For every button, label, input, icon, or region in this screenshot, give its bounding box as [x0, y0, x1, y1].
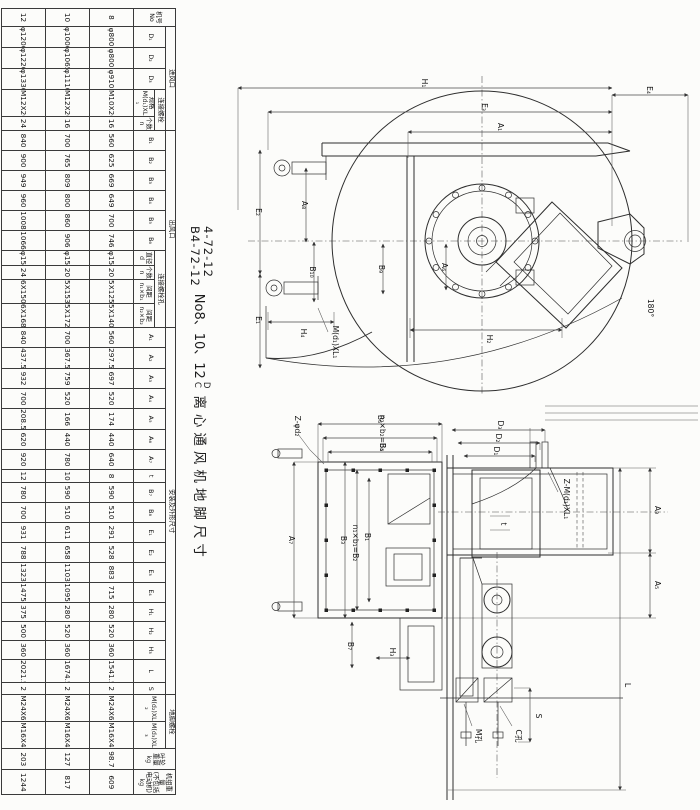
dim-label-t: t [499, 523, 508, 526]
dim-label-D2: D₂ [494, 434, 503, 443]
table-cell: 20 [89, 266, 133, 280]
table-cell: M16X400 [89, 722, 133, 749]
table-header-cell: 出风口 [166, 131, 176, 328]
table-header-cell: B₄ [133, 191, 165, 211]
table-header-cell: 规格 M(d₁)XL₁ [133, 90, 154, 117]
dimension-table-wrap: 机号 No进风口出风口安装及外形尺寸地脚螺栓叶轮 重量 kg机组重量 (不包括 … [8, 8, 176, 794]
table-cell: 949 [1, 171, 45, 191]
dim-label-A6: A₆ [440, 263, 449, 271]
table-cell: 1066 [1, 231, 45, 251]
table-cell: φ15 [1, 251, 45, 266]
table-cell: 1103 [45, 563, 89, 583]
table-header-cell: 连接螺栓 [155, 90, 166, 131]
table-cell: 788 [1, 543, 45, 563]
dim-label-H4: H₄ [299, 329, 308, 338]
table-cell: 658 [45, 543, 89, 563]
table-header-cell: B₁ [133, 131, 165, 151]
table-cell: 700 [1, 503, 45, 523]
table-header-cell: H₂ [133, 622, 165, 641]
table-cell: 360 [1, 641, 45, 660]
page: 机号 No进风口出风口安装及外形尺寸地脚螺栓叶轮 重量 kg机组重量 (不包括 … [0, 0, 700, 810]
table-cell: 700 [45, 131, 89, 151]
dim-label-H1: H₁ [420, 79, 429, 88]
table-cell: 500 [1, 622, 45, 641]
dim-label-A8: A₈ [300, 201, 309, 209]
table-header-cell: S [133, 683, 165, 695]
table-cell: 20 [45, 266, 89, 280]
table-header-cell: 间距 n₂×b₂ [133, 304, 154, 328]
table-cell: 860 [45, 211, 89, 231]
foundation-callout-left: M孔 [474, 729, 483, 744]
table-header-cell: A₂ [133, 348, 165, 369]
table-header-cell: H₃ [133, 641, 165, 660]
dim-label-D3: D₃ [496, 421, 505, 430]
table-header-cell: H₁ [133, 603, 165, 622]
drive-type-c: C [192, 382, 201, 389]
table-cell: 640 [89, 450, 133, 470]
table-cell: 10 [45, 470, 89, 483]
dim-label-A5: A₅ [653, 581, 662, 589]
fan-front-view-drawing: H₁ E₄ E₃ A₁ E₂ E₁ A₈ B₁₀ B₉ H₄ M(d₁)XL₁ … [230, 50, 700, 400]
table-cell: 24 [1, 266, 45, 280]
table-cell: 16 [45, 117, 89, 131]
table-cell: 166 [45, 409, 89, 430]
fan-side-view-drawing: B₆ n₂×b₂=B₅ B₄ Z-φd₂ A₇ B₃ n₁×b₁=B₂ B₁ B… [268, 400, 700, 810]
dim-label-D1: D₁ [492, 447, 501, 456]
table-cell: M16X400 [45, 722, 89, 749]
table-cell: 906 [45, 231, 89, 251]
table-header-cell: B₆ [133, 231, 165, 251]
table-cell: 932 [1, 369, 45, 389]
table-cell: 5X153 [45, 280, 89, 304]
inlet-stud-detail-bottom [266, 276, 318, 300]
table-cell: 669 [89, 171, 133, 191]
table-cell: 2 [89, 683, 133, 695]
table-cell: 700 [1, 389, 45, 409]
table-cell: 1475 [1, 583, 45, 603]
table-cell: 8 [89, 9, 133, 27]
table-cell: 440 [89, 430, 133, 450]
bolt-spec-label: M(d₁)XL₁ [331, 326, 340, 359]
table-header-cell: B₃ [133, 171, 165, 191]
table-row: 12φ1200φ1220φ1330M12X2024840900949960100… [1, 9, 45, 795]
table-cell: 510 [89, 503, 133, 523]
table-cell: φ1000 [45, 27, 89, 48]
table-cell: 528 [89, 543, 133, 563]
table-cell: 900 [1, 151, 45, 171]
table-cell: 590 [89, 483, 133, 503]
table-cell: M24X630 [89, 695, 133, 722]
dim-label-H3: H₃ [388, 648, 397, 657]
table-cell: 360 [45, 641, 89, 660]
dim-label-B4: B₄ [378, 443, 387, 451]
table-cell: 1541.5 [89, 660, 133, 683]
table-header-cell: 个数 n [133, 117, 154, 131]
dim-label-B10: B₁₀ [308, 266, 317, 277]
table-cell: 1674.5 [45, 660, 89, 683]
title-block: 4-72-12 B4-72-12 No8、10、12 D C 离心通风机地脚尺寸 [183, 226, 219, 592]
table-cell: M24X630 [1, 695, 45, 722]
table-header-cell: 安装及外形尺寸 [166, 328, 176, 695]
table-cell: 2 [1, 683, 45, 695]
table-cell: 765 [45, 151, 89, 171]
table-cell: 360 [89, 641, 133, 660]
table-cell: 24 [1, 117, 45, 131]
inlet-stud-detail-top [274, 156, 326, 180]
dim-label-H2: H₂ [485, 335, 494, 344]
table-cell: 280 [45, 603, 89, 622]
table-header-cell: 个数 n [133, 266, 154, 280]
table-cell: 780 [45, 450, 89, 470]
table-cell: 5X140 [89, 304, 133, 328]
table-cell: φ910 [89, 69, 133, 90]
table-header-cell: 地脚螺栓 [166, 695, 176, 749]
table-header-cell: B₂ [133, 151, 165, 171]
table-cell: 817 [45, 770, 89, 795]
fan-model-numbers: 4-72-12 B4-72-12 [188, 226, 214, 287]
table-header-cell: E₂ [133, 543, 165, 563]
dim-label-A3: A₃ [653, 506, 662, 514]
table-cell: 609 [89, 770, 133, 795]
table-cell: 5X125 [89, 280, 133, 304]
table-cell: φ800 [89, 48, 133, 69]
table-cell: 625 [89, 151, 133, 171]
table-cell: 1095 [45, 583, 89, 603]
table-header-cell: L [133, 660, 165, 683]
table-cell: 1323 [1, 563, 45, 583]
table-cell: 746 [89, 231, 133, 251]
table-cell: 1244 [1, 770, 45, 795]
table-cell: φ1110 [45, 69, 89, 90]
table-cell: 375 [1, 603, 45, 622]
table-cell: 8 [89, 470, 133, 483]
table-header-cell: E₄ [133, 583, 165, 603]
table-cell: 620 [1, 430, 45, 450]
table-header-cell: D₂ [133, 48, 165, 69]
foundation-callout-right: C孔 [514, 730, 523, 743]
table-cell: 280 [89, 603, 133, 622]
table-header-cell: 直径 d [133, 251, 154, 266]
table-header-cell: A₆ [133, 430, 165, 450]
table-header-cell: 叶轮 重量 kg [133, 749, 175, 770]
dim-label-B9: B₉ [377, 265, 386, 273]
table-header-cell: D₃ [133, 69, 165, 90]
table-cell: φ1200 [1, 27, 45, 48]
table-cell: 560 [89, 131, 133, 151]
table-cell: 700 [89, 211, 133, 231]
table-cell: M10X20 [89, 90, 133, 117]
dim-label-A1: A₁ [496, 123, 505, 131]
table-cell: 611 [45, 523, 89, 543]
table-header-cell: 间距 n₁×b₁ [133, 280, 154, 304]
table-cell: 440 [45, 430, 89, 450]
table-cell: 12 [1, 470, 45, 483]
table-header-cell: B₇ [133, 483, 165, 503]
inlet-bolt-callout: Z-M(d₁)XL₁ [562, 479, 571, 520]
bolt-hole-callout: Z-φd₂ [293, 416, 302, 437]
table-cell: 5X172 [45, 304, 89, 328]
table-cell: 6X168 [1, 304, 45, 328]
table-cell: 931 [1, 523, 45, 543]
table-cell: 697 [89, 369, 133, 389]
outlet-angle-label: 180° [646, 299, 655, 317]
table-cell: 809 [45, 171, 89, 191]
table-header-cell: 机组重量 (不包括 电动机)kg [133, 770, 175, 795]
dim-label-E2: E₂ [254, 208, 263, 216]
table-header-cell: t [133, 470, 165, 483]
table-cell: 590 [45, 483, 89, 503]
dim-label-B7: B₇ [346, 642, 355, 650]
table-cell: 510 [45, 503, 89, 523]
table-cell: 6X150 [1, 280, 45, 304]
dim-label-L: L [623, 683, 632, 688]
drive-type-d: D [201, 382, 210, 389]
table-cell: 2 [45, 683, 89, 695]
table-cell: 203 [1, 749, 45, 770]
table-cell: 297.5 [89, 348, 133, 369]
table-cell: 840 [1, 131, 45, 151]
table-cell: 520 [45, 622, 89, 641]
fan-sizes: No8、10、12 [192, 294, 211, 379]
table-cell: 98.7 [89, 749, 133, 770]
table-cell: 649 [89, 191, 133, 211]
model-top: 4-72-12 [201, 226, 214, 287]
dim-label-A7: A₇ [287, 536, 296, 544]
table-cell: φ1065 [45, 48, 89, 69]
table-cell: 520 [89, 389, 133, 409]
dim-label-E4: E₄ [645, 86, 654, 94]
table-cell: 208.5 [1, 409, 45, 430]
table-header-row: D₁D₂D₃连接螺栓B₁B₂B₃B₄B₅B₆连接螺栓孔A₁A₂A₃A₄A₅A₆A… [155, 9, 166, 795]
table-cell: 367.5 [45, 348, 89, 369]
table-cell: φ15 [89, 251, 133, 266]
table-header-cell: M(d₃)XL₃ [133, 722, 165, 749]
table-cell: 715 [89, 583, 133, 603]
table-row: 10φ1000φ1065φ1110M12X2016700765809800860… [45, 9, 89, 795]
table-cell: 700 [45, 328, 89, 348]
table-cell: 780 [1, 483, 45, 503]
table-cell: M24X630 [45, 695, 89, 722]
drawing-title: 离心通风机地脚尺寸 [191, 395, 211, 562]
table-cell: 2021.5 [1, 660, 45, 683]
dim-label-S: S [534, 714, 543, 719]
model-bottom: B4-72-12 [188, 226, 201, 287]
table-header-cell: 进风口 [166, 27, 176, 131]
table-cell: 883 [89, 563, 133, 583]
table-cell: 759 [45, 369, 89, 389]
table-cell: 16 [89, 117, 133, 131]
table-header-cell: 机号 No [133, 9, 175, 27]
table-cell: φ1330 [1, 69, 45, 90]
dim-label-B1: B₁ [363, 533, 372, 541]
table-header-cell: D₁ [133, 27, 165, 48]
table-header-cell: E₁ [133, 523, 165, 543]
table-cell: 560 [89, 328, 133, 348]
table-cell: 174 [89, 409, 133, 430]
table-cell: φ15 [45, 251, 89, 266]
table-header-cell: B₈ [133, 503, 165, 523]
table-cell: M16X400 [1, 722, 45, 749]
table-header-cell: A₄ [133, 389, 165, 409]
table-cell: 291 [89, 523, 133, 543]
table-cell: 920 [1, 450, 45, 470]
table-cell: 840 [1, 328, 45, 348]
table-header-cell: A₅ [133, 409, 165, 430]
dim-label-E3: E₃ [480, 103, 489, 111]
table-cell: 800 [45, 191, 89, 211]
table-cell: φ800 [89, 27, 133, 48]
table-cell: 10 [45, 9, 89, 27]
dim-label-B2: n₁×b₁=B₂ [351, 525, 360, 562]
dim-label-E1: E₁ [254, 316, 263, 324]
dim-label-B3: B₃ [339, 536, 348, 544]
table-cell: M12X20 [45, 90, 89, 117]
table-cell: 127 [45, 749, 89, 770]
table-header-cell: E₃ [133, 563, 165, 583]
table-header-cell: A₇ [133, 450, 165, 470]
table-cell: 1008 [1, 211, 45, 231]
table-header-cell: A₃ [133, 369, 165, 389]
table-cell: 960 [1, 191, 45, 211]
dimension-table: 机号 No进风口出风口安装及外形尺寸地脚螺栓叶轮 重量 kg机组重量 (不包括 … [1, 8, 176, 795]
table-header-cell: A₁ [133, 328, 165, 348]
table-header-row: 机号 No进风口出风口安装及外形尺寸地脚螺栓叶轮 重量 kg机组重量 (不包括 … [166, 9, 176, 795]
drive-type-letters: D C [192, 382, 211, 389]
table-cell: 520 [45, 389, 89, 409]
table-cell: 520 [89, 622, 133, 641]
table-header-cell: M(d₂)XL₂ [133, 695, 165, 722]
table-cell: M12X20 [1, 90, 45, 117]
table-cell: φ1220 [1, 48, 45, 69]
table-cell: 12 [1, 9, 45, 27]
table-cell: 437.5 [1, 348, 45, 369]
table-header-cell: 连接螺栓孔 [155, 251, 166, 328]
table-header-cell: B₅ [133, 211, 165, 231]
table-row: 8φ800φ800φ910M10X2016560625669649700746φ… [89, 9, 133, 795]
